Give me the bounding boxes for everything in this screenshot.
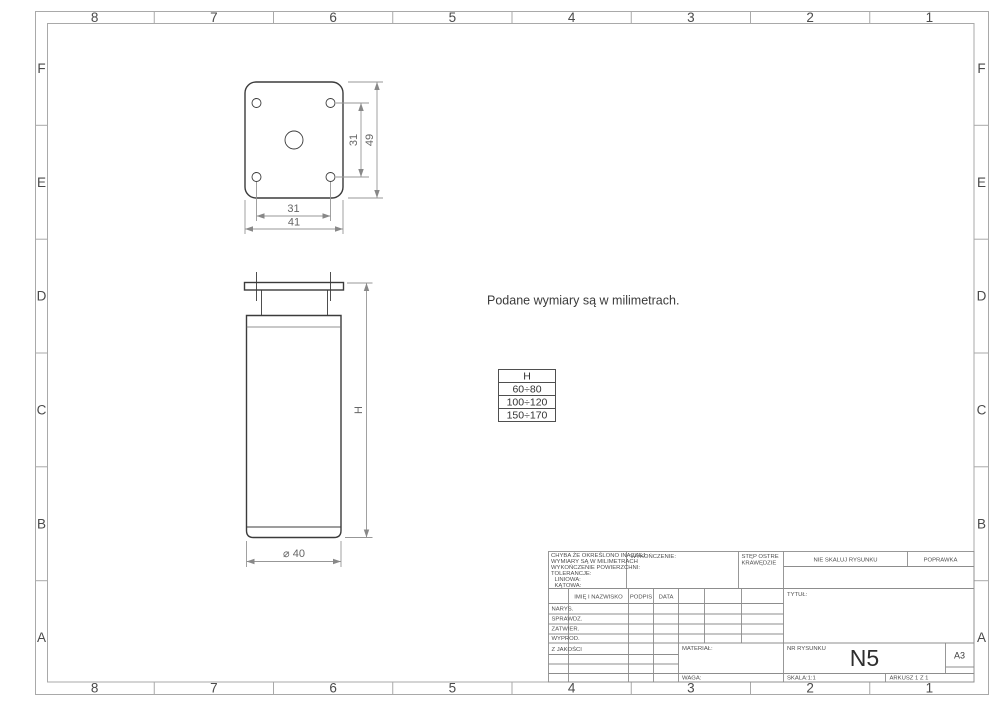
revision-label: POPRAWKA (924, 558, 958, 564)
h-table-row: 60÷80 (512, 384, 541, 396)
zone-labels: 8 7 6 5 4 3 2 1 8 7 6 5 4 3 2 1 F E D C … (37, 10, 987, 696)
zone-col-top: 4 (568, 10, 576, 25)
corner-hole (252, 173, 261, 182)
title-label: TYTUŁ: (787, 592, 808, 598)
finish-label: WYKOŃCZENIE: (631, 553, 677, 560)
zone-row-left: F (37, 61, 45, 76)
zone-col-bottom: 1 (926, 681, 934, 696)
zone-row-right: F (977, 61, 985, 76)
zone-col-bottom: 3 (687, 681, 695, 696)
material-label: MATERIAŁ: (682, 646, 713, 652)
drawing-number: N5 (850, 645, 879, 671)
zone-col-top: 7 (210, 10, 218, 25)
tolerance-note-line: KĄTOWA: (555, 583, 582, 589)
dim-hole-spacing-vertical: 31 (348, 134, 360, 146)
units-note: Podane wymiary są w milimetrach. (487, 294, 679, 308)
zone-row-right: E (977, 175, 986, 190)
zone-row-right: A (977, 630, 986, 645)
dim-plate-height: 49 (364, 134, 376, 146)
zone-col-bottom: 4 (568, 681, 576, 696)
weight-label: WAGA: (682, 676, 702, 682)
sig-row-label: WYPROD. (552, 636, 581, 642)
dim-plate-width: 41 (288, 217, 300, 229)
sig-row-label: SPRAWDZ. (552, 617, 583, 623)
h-table-header: H (523, 371, 531, 383)
zone-col-bottom: 7 (210, 681, 218, 696)
zone-row-right: C (977, 403, 987, 418)
zone-col-top: 5 (449, 10, 457, 25)
leg-body (247, 316, 342, 538)
title-block: CHYBA ŻE OKREŚLONO INACZEJ: WYMIARY SĄ W… (549, 551, 975, 682)
deburr-note: KRAWĘDZIE (742, 561, 777, 567)
tolerance-note-line: WYKOŃCZENIE POWIERZCHNI: (551, 564, 640, 571)
zone-col-bottom: 8 (91, 681, 99, 696)
zone-row-left: D (37, 289, 47, 304)
sheet-count-label: ARKUSZ 1 Z 1 (890, 676, 929, 682)
do-not-scale-label: NIE SKALUJ RYSUNKU (813, 558, 877, 564)
col-header-signature: PODPIS (630, 595, 652, 601)
col-header-name: IMIĘ I NAZWISKO (574, 595, 623, 601)
zone-row-left: C (37, 403, 47, 418)
corner-hole (252, 99, 261, 108)
dim-leg-height: H (353, 406, 365, 414)
inner-border (48, 24, 975, 683)
zone-row-left: A (37, 630, 46, 645)
drawing-sheet: 8 7 6 5 4 3 2 1 8 7 6 5 4 3 2 1 F E D C … (0, 0, 1000, 707)
top-view-plate: 31 49 31 41 (245, 82, 383, 234)
h-table-row: 100÷120 (507, 397, 548, 409)
dim-leg-diameter: ⌀ 40 (283, 548, 305, 560)
corner-hole (326, 99, 335, 108)
zone-col-bottom: 6 (329, 681, 337, 696)
scale-label: SKALA:1:1 (787, 676, 816, 682)
deburr-note: STĘP OSTRE (742, 554, 779, 560)
zone-row-right: B (977, 517, 986, 532)
top-plate (245, 283, 344, 291)
zone-col-top: 3 (687, 10, 695, 25)
h-table: H 60÷80 100÷120 150÷170 (499, 370, 556, 422)
sig-row-label: ZATWIER. (552, 627, 580, 633)
sig-row-label: Z JAKOŚCI (552, 645, 583, 653)
dim-hole-spacing-horizontal: 31 (287, 203, 299, 215)
zone-col-top: 8 (91, 10, 99, 25)
zone-col-top: 6 (329, 10, 337, 25)
center-hole (285, 131, 303, 149)
outer-border (36, 12, 989, 695)
zone-row-right: D (977, 289, 987, 304)
zone-col-top: 2 (806, 10, 814, 25)
sig-row-label: NARYS. (552, 607, 574, 613)
paper-size: A3 (954, 651, 965, 661)
h-table-row: 150÷170 (507, 410, 548, 422)
zone-col-top: 1 (926, 10, 934, 25)
zone-col-bottom: 5 (449, 681, 457, 696)
front-view-leg: H ⌀ 40 (245, 272, 373, 567)
zone-col-bottom: 2 (806, 681, 814, 696)
zone-row-left: E (37, 175, 46, 190)
zone-row-left: B (37, 517, 46, 532)
drawing-frame (36, 12, 989, 695)
corner-hole (326, 173, 335, 182)
drawing-no-label: NR RYSUNKU (787, 646, 826, 652)
col-header-date: DATA (659, 595, 674, 601)
